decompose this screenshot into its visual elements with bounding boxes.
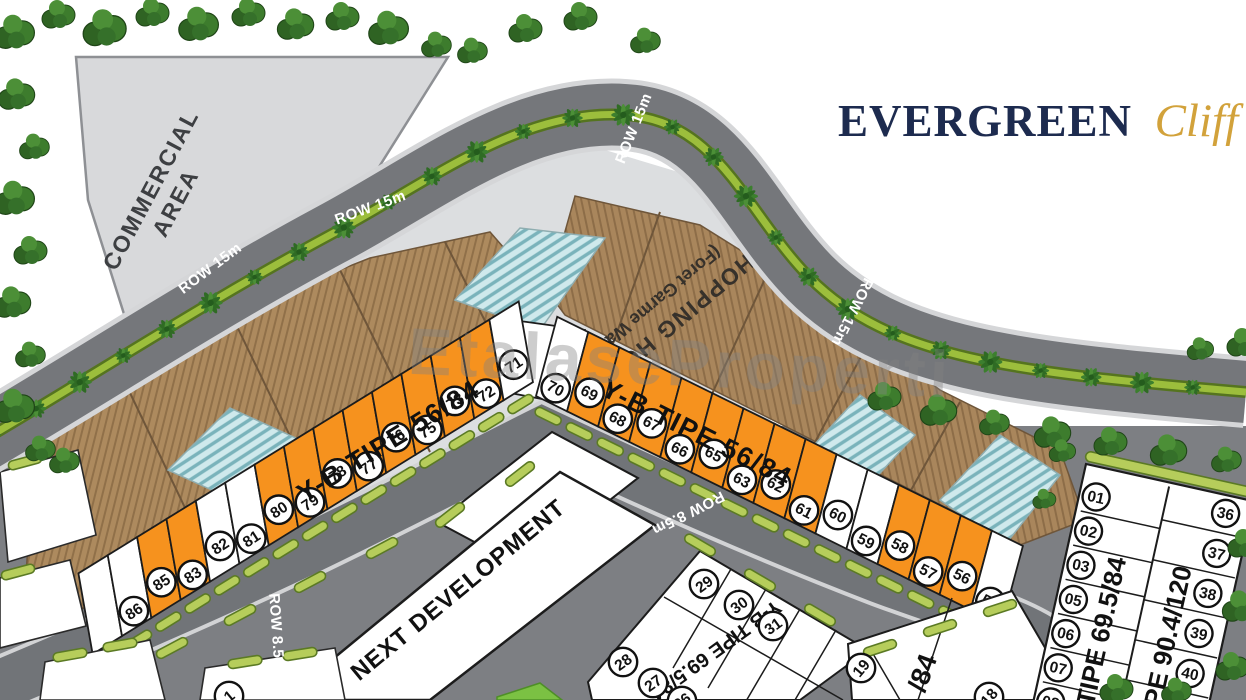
brand-logo-name: EVERGREEN bbox=[838, 96, 1132, 146]
site-plan-map: COMMERCIAL AREA SHOPPING HOUSE (Foret Ga… bbox=[0, 0, 1246, 700]
brand-logo-suffix: Cliff bbox=[1155, 95, 1245, 147]
brand-logo: EVERGREEN Cliff bbox=[838, 95, 1244, 147]
